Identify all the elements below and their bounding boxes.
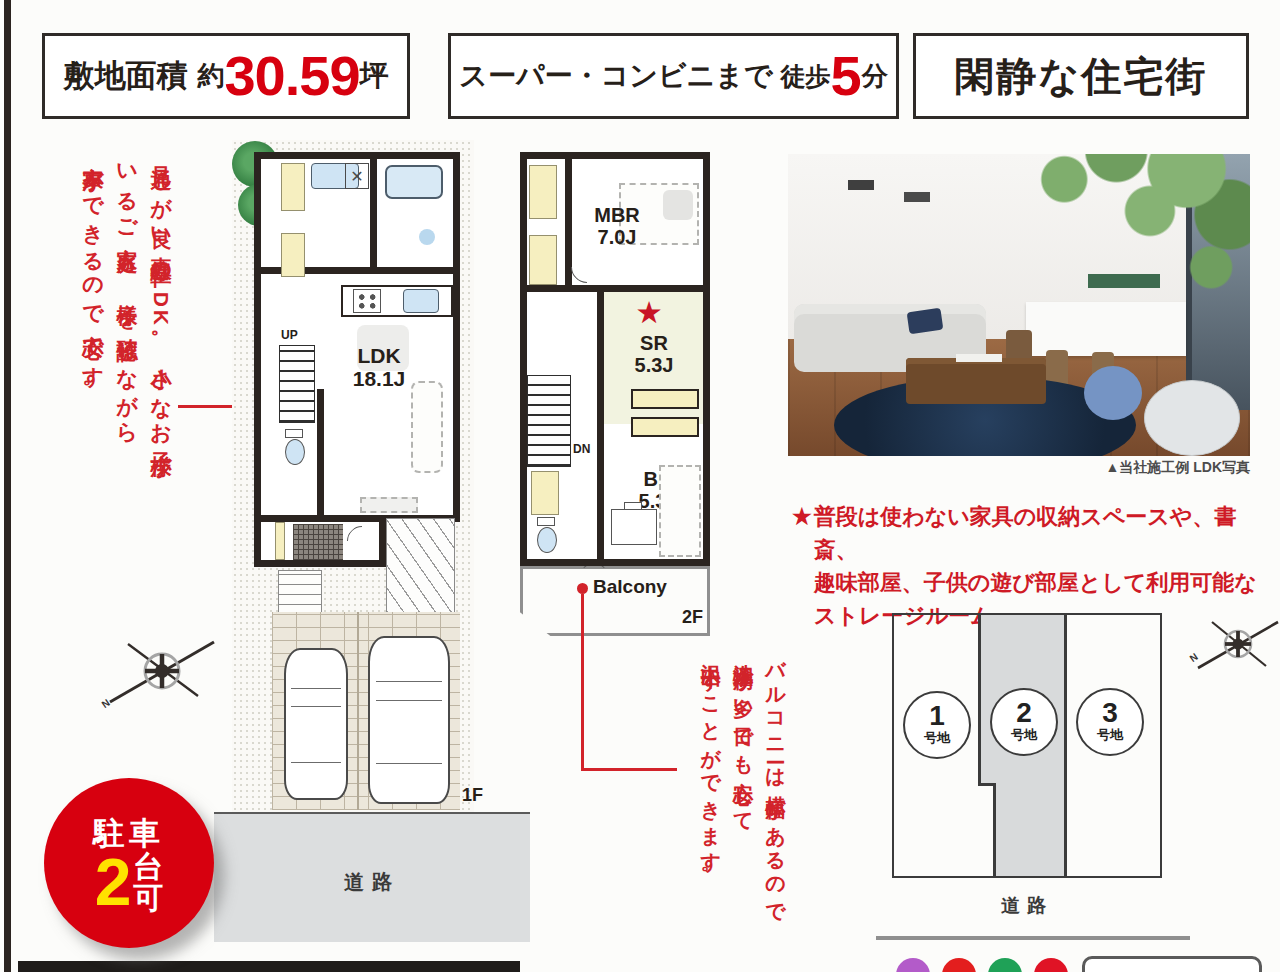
badge-number: 2 bbox=[95, 851, 132, 914]
bottom-info-box bbox=[1082, 956, 1262, 972]
site-area-label: 敷地面積 bbox=[63, 55, 187, 97]
compass-icon bbox=[1196, 610, 1280, 684]
sr-size: 5.3J bbox=[617, 355, 691, 377]
compass-icon bbox=[106, 626, 218, 718]
lot-2-circle: 2 号地 bbox=[990, 688, 1058, 756]
siteplan-road-line bbox=[876, 936, 1190, 940]
stairs-dn-label: DN bbox=[573, 443, 590, 456]
lot-boundary bbox=[978, 613, 981, 785]
photo-wall-light bbox=[848, 180, 874, 190]
parking-divider bbox=[357, 612, 359, 810]
photo-table-books bbox=[956, 354, 1002, 362]
site-area-unit: 坪 bbox=[360, 56, 389, 96]
parking-badge: 駐車 2 台 可 bbox=[44, 778, 214, 948]
site-area-approx: 約 bbox=[197, 58, 224, 94]
toilet-bowl bbox=[285, 439, 305, 465]
washing-machine: ✕ bbox=[345, 163, 369, 189]
balcony-callout-vline bbox=[581, 594, 584, 770]
photo-caption: ▲当社施工例 LDK写真 bbox=[788, 459, 1250, 477]
lot-1-number: 1 bbox=[929, 703, 945, 730]
sr-room-label: SR 5.3J bbox=[617, 333, 691, 376]
sns-icon bbox=[942, 958, 976, 972]
floorplan-2f-building: MBR 7.0J ★ SR 5.3J DN BR 5.3J bbox=[520, 152, 710, 566]
stove-icon bbox=[353, 289, 381, 313]
instagram-icon bbox=[896, 958, 930, 972]
wall bbox=[370, 159, 377, 267]
walk-value: 5 bbox=[831, 48, 862, 104]
closet bbox=[281, 163, 305, 211]
bathtub bbox=[385, 165, 443, 199]
walk-time-box: スーパー・コンビニまで 徒歩 5 分 bbox=[448, 33, 899, 119]
wall bbox=[317, 389, 324, 515]
kitchen-sink bbox=[403, 289, 439, 313]
mbr-label: MBR bbox=[575, 205, 659, 227]
site-area-value: 30.59 bbox=[224, 48, 359, 104]
photo-foliage bbox=[948, 154, 1250, 306]
photo-wall-light bbox=[904, 192, 930, 202]
lot-3-suffix: 号地 bbox=[1097, 726, 1123, 744]
lot-1-suffix: 号地 bbox=[924, 729, 950, 747]
badge-suffix: 可 bbox=[133, 882, 163, 914]
site-area-box: 敷地面積 約 30.59 坪 bbox=[42, 33, 410, 119]
stairs-2f bbox=[527, 375, 571, 467]
lot-1-circle: 1 号地 bbox=[903, 691, 971, 759]
ldk-room-label: LDK 18.1J bbox=[337, 345, 421, 390]
lot-3-number: 3 bbox=[1102, 700, 1118, 727]
walk-label: スーパー・コンビニまで bbox=[459, 57, 772, 95]
badge-unit: 台 bbox=[133, 851, 163, 883]
ldk-note-vertical: 見通しが良い直線型のLDK。小さなお子様が いるご家庭も、様子を確認しながら 家… bbox=[72, 150, 178, 666]
storage-note-star: ★ bbox=[792, 500, 812, 632]
sofa bbox=[411, 381, 443, 473]
car-icon bbox=[284, 648, 348, 800]
lot-2-suffix: 号地 bbox=[1011, 726, 1037, 744]
entrance-door-arc bbox=[341, 520, 383, 562]
car-icon bbox=[368, 636, 450, 804]
toilet-bowl bbox=[537, 527, 557, 553]
photo-coffee-table bbox=[906, 358, 1046, 404]
flyer-page: 敷地面積 約 30.59 坪 スーパー・コンビニまで 徒歩 5 分 閑静な住宅街… bbox=[0, 0, 1280, 972]
pillow bbox=[663, 190, 693, 220]
balcony-note-vertical: バルコニーは横幅があるので 洗濯物が多い日でも安心して 沢山干すことができます。 bbox=[698, 648, 792, 970]
mbr-size: 7.0J bbox=[575, 227, 659, 249]
youtube-icon bbox=[1034, 958, 1068, 972]
ldk-photo bbox=[788, 154, 1250, 456]
sr-label: SR bbox=[617, 333, 691, 355]
closet bbox=[275, 522, 285, 560]
wall bbox=[597, 292, 604, 559]
ldk-size: 18.1J bbox=[337, 368, 421, 391]
quiet-area-box: 閑静な住宅街 bbox=[913, 33, 1249, 119]
floorplan-1f-building: ✕ LDK 18.1J UP bbox=[254, 152, 460, 522]
bottom-black-bar bbox=[18, 961, 520, 972]
siteplan-road-label: 道路 bbox=[892, 893, 1162, 919]
mbr-room-label: MBR 7.0J bbox=[575, 205, 659, 248]
road-label: 道路 bbox=[214, 872, 530, 894]
walk-unit: 分 bbox=[862, 59, 888, 94]
floorplan-1f-entrance bbox=[254, 515, 386, 567]
walk-prefix: 徒歩 bbox=[781, 60, 831, 93]
photo-pouf-white bbox=[1144, 380, 1240, 456]
storage-room-star: ★ bbox=[637, 297, 661, 329]
quiet-label: 閑静な住宅街 bbox=[955, 49, 1208, 104]
desk bbox=[611, 509, 657, 545]
entrance-mat bbox=[293, 524, 343, 560]
ldk-label: LDK bbox=[337, 345, 421, 368]
balcony-label: Balcony bbox=[593, 577, 667, 598]
floor-label-2f: 2F bbox=[682, 608, 703, 627]
photo-cushion bbox=[907, 308, 944, 335]
closet bbox=[531, 471, 559, 515]
floor-label-1f: 1F bbox=[462, 786, 483, 805]
toilet-tank bbox=[285, 429, 303, 438]
stairs-1f bbox=[279, 345, 315, 423]
outdoor-winder-steps bbox=[386, 518, 455, 613]
closet bbox=[529, 235, 557, 285]
closet bbox=[529, 165, 557, 219]
road-1f: 道路 bbox=[214, 812, 530, 942]
wall bbox=[527, 285, 703, 292]
stairs-up-label: UP bbox=[281, 329, 298, 342]
closet bbox=[281, 233, 305, 277]
line-icon bbox=[988, 958, 1022, 972]
toilet-tank bbox=[537, 517, 555, 526]
balcony-callout-hline bbox=[581, 768, 677, 771]
balcony-callout-dot bbox=[577, 583, 588, 594]
bed bbox=[659, 465, 701, 557]
photo-kitchen-island bbox=[1026, 302, 1186, 356]
bath-drain bbox=[419, 229, 435, 245]
lot-boundary bbox=[993, 783, 996, 878]
lot-3-circle: 3 号地 bbox=[1076, 688, 1144, 756]
lot-boundary bbox=[1064, 613, 1067, 878]
photo-pouf-blue bbox=[1084, 366, 1142, 420]
left-edge-bar bbox=[4, 0, 11, 972]
porch-canopy bbox=[360, 497, 418, 513]
lot-2-number: 2 bbox=[1016, 700, 1032, 727]
